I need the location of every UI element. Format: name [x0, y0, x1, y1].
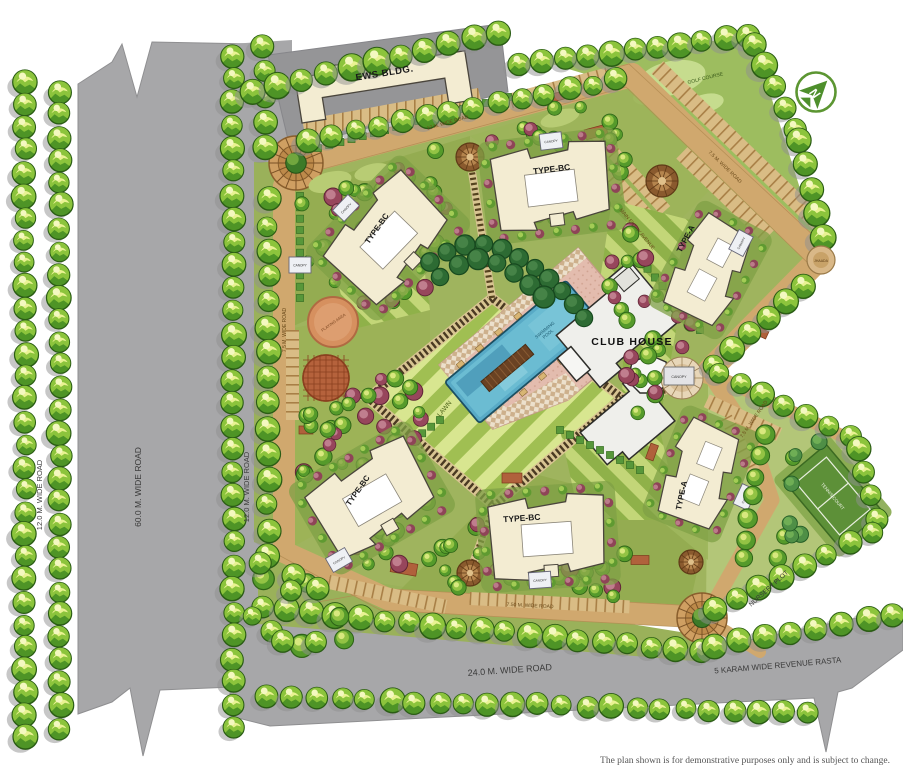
svg-text:The plan shown is for demonstr: The plan shown is for demonstrative purp… — [600, 755, 890, 766]
svg-text:JHAADA: JHAADA — [814, 259, 828, 263]
svg-text:12.0 M. WIDE ROAD: 12.0 M. WIDE ROAD — [35, 459, 44, 530]
svg-text:CLUB HOUSE: CLUB HOUSE — [591, 336, 672, 348]
svg-text:7.5 M. WIDE ROAD: 7.5 M. WIDE ROAD — [282, 308, 288, 353]
svg-text:12.0 M. WIDE ROAD: 12.0 M. WIDE ROAD — [242, 451, 251, 522]
svg-text:CANOPY: CANOPY — [293, 264, 307, 268]
svg-text:CANOPY: CANOPY — [671, 375, 687, 379]
svg-text:60.0 M. WIDE ROAD: 60.0 M. WIDE ROAD — [133, 447, 143, 527]
